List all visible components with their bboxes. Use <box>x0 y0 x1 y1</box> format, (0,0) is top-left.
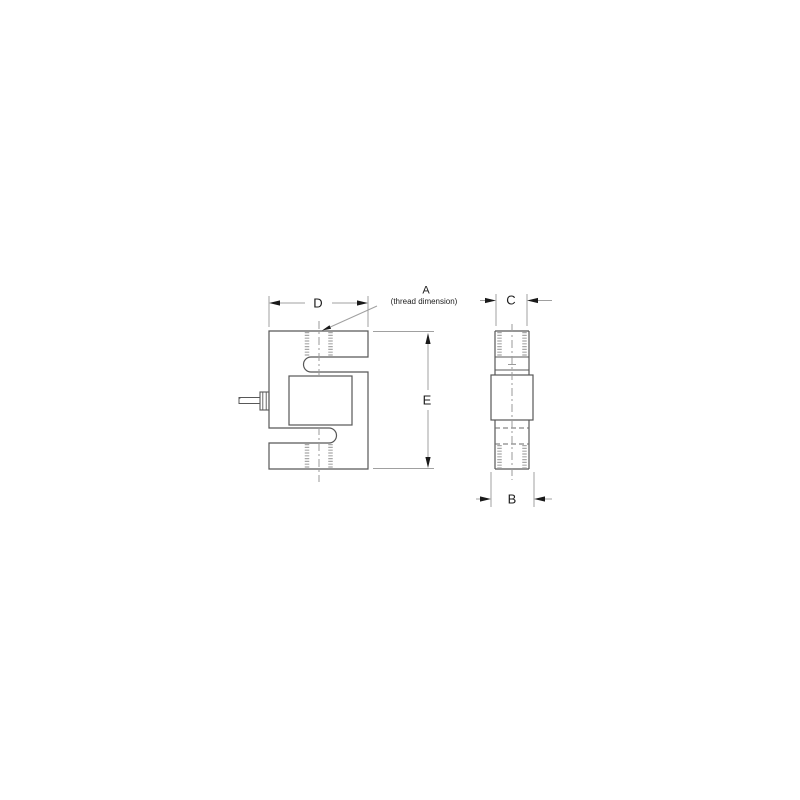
d-arrow-right <box>357 300 368 305</box>
dim-label-e: E <box>421 394 434 407</box>
a-leader-arrow <box>322 325 331 330</box>
d-arrow-left <box>269 300 280 305</box>
b-arrow-right <box>534 496 545 501</box>
mounting-bolt <box>239 392 269 410</box>
load-cell-dimension-drawing <box>0 0 800 800</box>
dimension-a-leader <box>322 306 377 331</box>
center-opening <box>289 376 352 425</box>
c-arrow-left <box>485 298 496 303</box>
e-arrow-top <box>425 333 430 344</box>
e-arrow-bottom <box>425 457 430 468</box>
dim-label-c: C <box>504 294 517 307</box>
bolt-nut <box>260 392 269 410</box>
dim-label-b: B <box>506 493 519 506</box>
dim-label-a-note: (thread dimension) <box>390 298 459 306</box>
side-view <box>476 294 552 507</box>
drawing-canvas: D A (thread dimension) E C B <box>0 0 800 800</box>
a-leader-line <box>327 306 377 329</box>
dim-label-a: A <box>420 286 431 297</box>
bolt-shaft <box>239 398 260 404</box>
front-view <box>239 296 434 482</box>
dim-label-d: D <box>311 297 324 310</box>
side-middle-block <box>491 375 533 420</box>
b-arrow-left <box>480 496 491 501</box>
c-arrow-right <box>527 298 538 303</box>
